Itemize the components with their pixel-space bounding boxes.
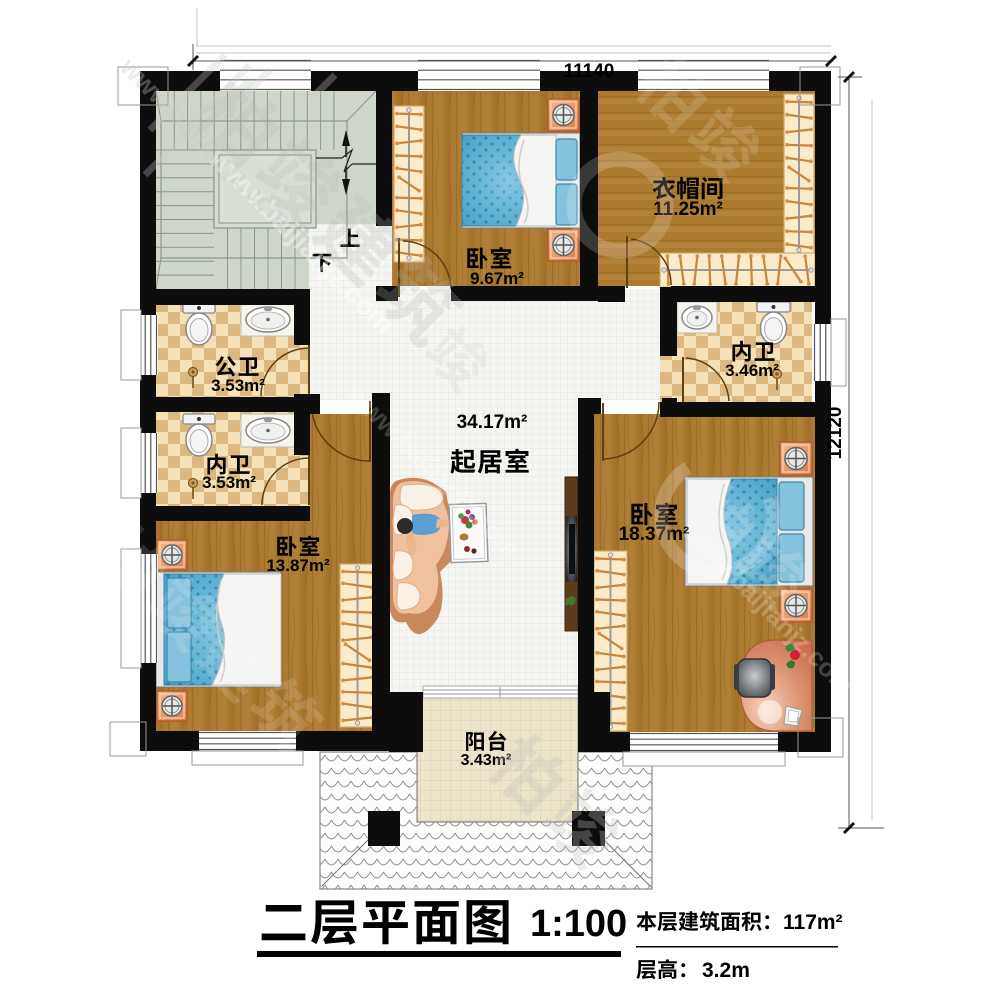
svg-text:3.2m: 3.2m bbox=[702, 959, 750, 982]
svg-text:117m²: 117m² bbox=[783, 911, 843, 934]
svg-text:3.53m²: 3.53m² bbox=[211, 376, 265, 395]
svg-text:3.53m²: 3.53m² bbox=[202, 473, 256, 492]
svg-text:11140: 11140 bbox=[564, 61, 615, 82]
svg-text:13.87m²: 13.87m² bbox=[266, 556, 330, 575]
svg-text:9.67m²: 9.67m² bbox=[470, 269, 524, 288]
svg-text:1:100: 1:100 bbox=[530, 903, 627, 945]
svg-text:3.46m²: 3.46m² bbox=[725, 361, 779, 380]
svg-text:12120: 12120 bbox=[825, 407, 846, 460]
svg-text:34.17m²: 34.17m² bbox=[457, 412, 528, 433]
